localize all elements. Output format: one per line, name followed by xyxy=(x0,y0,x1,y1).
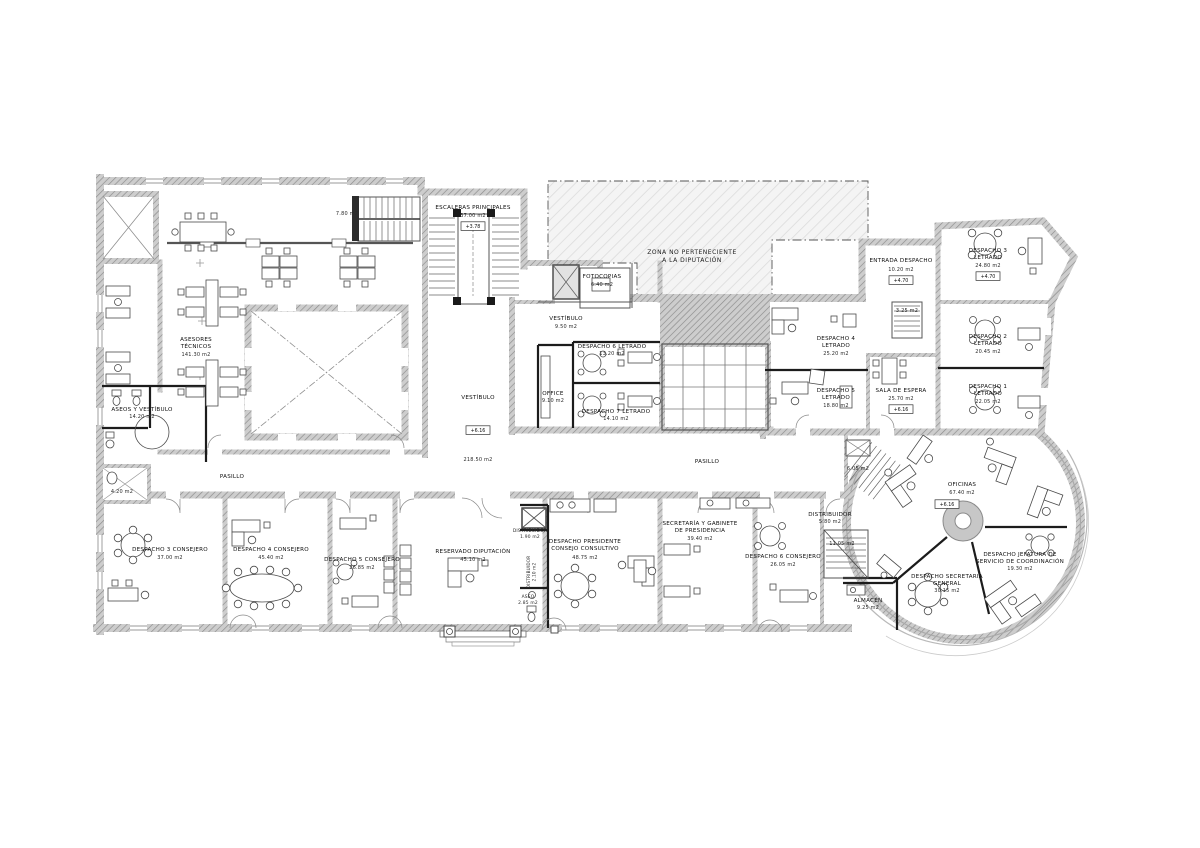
zone-note-line2: A LA DIPUTACIÓN xyxy=(662,257,722,264)
room-area: 1.90 m2 xyxy=(520,534,540,540)
room-name: RESERVADO DIPUTACIÓN xyxy=(435,548,510,555)
room-area: 22.05 m2 xyxy=(975,399,1001,405)
room-name: PASILLO xyxy=(695,459,720,465)
room-name-2: LETRADO xyxy=(974,341,1002,347)
despacho-presidente-furniture xyxy=(550,499,654,608)
label-despacho-jefatura: DESPACHO JEFATURA DE SERVICIO DE COORDIN… xyxy=(976,552,1064,572)
label-asesores-tecnicos: ASESORES TÉCNICOS 141.30 m2 xyxy=(180,337,212,358)
floor-plan-page: ESCALERAS PRINCIPALES 37.00 m2 +3.78 7.8… xyxy=(0,0,1200,848)
room-area: 24.80 m2 xyxy=(975,263,1001,269)
workstation-quad-2 xyxy=(340,248,375,287)
room-area: 18.80 m2 xyxy=(823,403,849,409)
room-area: 6.40 m2 xyxy=(591,282,613,288)
label-despacho-4-consejero: DESPACHO 4 CONSEJERO 45.40 m2 xyxy=(233,547,309,561)
label-despacho-3-letrado: DESPACHO 3 LETRADO 24.80 m2 +4.70 xyxy=(969,248,1008,280)
room-name: DESPACHO 5 CONSEJERO xyxy=(324,557,400,563)
room-name: DESPACHO 7 LETRADO xyxy=(582,409,651,415)
room-area: 67.40 m2 xyxy=(949,490,975,496)
label-entrada-despacho: ENTRADA DESPACHO 10.20 m2 +4.70 xyxy=(869,258,932,284)
room-name: DESPACHO 4 xyxy=(817,336,856,342)
room-area: 26.85 m2 xyxy=(349,565,375,571)
room-area: 9.10 m2 xyxy=(542,398,564,404)
label-despacho-2-letrado: DESPACHO 2 LETRADO 20.45 m2 xyxy=(969,334,1008,355)
room-area: 9.25 m2 xyxy=(857,605,879,611)
room-area: 2.85 m2 xyxy=(518,600,538,606)
room-name: DESPACHO 2 xyxy=(969,334,1008,340)
room-area: 14.20 m2 xyxy=(129,414,155,420)
label-cuarto-420: 4.20 m2 xyxy=(111,489,133,495)
room-name: VESTÍBULO xyxy=(461,394,495,401)
room-name: ESCALERAS PRINCIPALES xyxy=(435,205,510,211)
room-name: FOTOCOPIAS xyxy=(583,274,622,280)
room-name-2: LETRADO xyxy=(822,395,850,401)
left-wing-desks xyxy=(106,286,130,384)
meeting-table-top-left xyxy=(172,213,234,251)
zone-note-line1: ZONA NO PERTENECIENTE xyxy=(647,249,737,256)
room-name: ASEOS Y VESTÍBULO xyxy=(111,406,173,413)
room-name: SALA DE ESPERA xyxy=(876,388,927,394)
room-name: DESPACHO 3 xyxy=(969,248,1008,254)
workstation-cross-1 xyxy=(178,280,246,326)
room-area: 30.15 m2 xyxy=(934,588,960,594)
shaft-top-left xyxy=(101,194,156,261)
room-name: DESPACHO 4 CONSEJERO xyxy=(233,547,309,553)
almacen-fixtures xyxy=(847,585,865,595)
room-name: DESPACHO 3 CONSEJERO xyxy=(132,547,208,553)
room-name: ASEO xyxy=(522,594,535,600)
room-area: 20.45 m2 xyxy=(975,349,1001,355)
room-area: 48.75 m2 xyxy=(572,555,598,561)
oficinas-desks-3 xyxy=(1027,486,1063,523)
room-area: 14.10 m2 xyxy=(603,416,629,422)
room-name: DESPACHO JEFATURA DE xyxy=(983,552,1057,558)
room-name-2: CONSEJO CONSULTIVO xyxy=(551,546,619,552)
label-pasillo-derecho: PASILLO xyxy=(695,459,720,465)
room-area: 39.40 m2 xyxy=(687,536,713,542)
label-despacho-presidente: DESPACHO PRESIDENTE CONSEJO CONSULTIVO 4… xyxy=(549,539,621,561)
floor-plan-drawing: ESCALERAS PRINCIPALES 37.00 m2 +3.78 7.8… xyxy=(0,0,1200,848)
elevation-value: +6.16 xyxy=(894,407,909,413)
elevation-value: +6.16 xyxy=(940,502,955,508)
room-area: 37.00 m2 xyxy=(460,213,486,219)
room-name: DESPACHO PRESIDENTE xyxy=(549,539,621,545)
elevation-value: +6.16 xyxy=(471,428,486,434)
room-name: OFFICE xyxy=(542,391,564,397)
label-vestibulo-pequeno: VESTÍBULO 9.50 m2 xyxy=(549,315,583,330)
oficinas-desks-4 xyxy=(907,435,941,471)
room-name-2: LETRADO xyxy=(822,343,850,349)
stairs-780 xyxy=(352,196,420,241)
room-name-2: LETRADO xyxy=(974,391,1002,397)
elevation-value: +4.70 xyxy=(894,278,909,284)
room-area: 45.10 m2 xyxy=(460,557,486,563)
office-counter xyxy=(541,356,550,418)
room-area: 9.50 m2 xyxy=(555,324,577,330)
label-despacho-4-letrado: DESPACHO 4 LETRADO 25.20 m2 xyxy=(817,336,856,357)
label-aseos-y-vestibulo: ASEOS Y VESTÍBULO 14.20 m2 xyxy=(111,406,173,420)
label-almacen: ALMACÉN 9.25 m2 xyxy=(854,596,883,611)
room-area: 218.50 m2 xyxy=(464,457,493,463)
workstation-cross-2 xyxy=(178,360,246,406)
room-name: DESPACHO 5 xyxy=(817,388,856,394)
label-vestibulo-central: VESTÍBULO +6.16 218.50 m2 xyxy=(461,394,495,463)
room-name: PASILLO xyxy=(220,474,245,480)
room-area: 6.05 m2 xyxy=(847,466,869,472)
label-escalera-605: 6.05 m2 xyxy=(847,466,869,472)
room-area: 5.80 m2 xyxy=(819,519,841,525)
room-name: DISTRIBUIDOR xyxy=(513,528,547,534)
room-name: SECRETARÍA Y GABINETE xyxy=(662,520,737,527)
label-escalera-325: 3.25 m2 xyxy=(896,308,918,314)
room-name: DISTRIBUIDOR xyxy=(526,556,531,589)
room-area: 13.20 m2 xyxy=(599,351,625,357)
room-name: ENTRADA DESPACHO xyxy=(869,258,932,264)
room-area: 7.80 m2 xyxy=(336,211,358,217)
room-name: DESPACHO 1 xyxy=(969,384,1008,390)
label-secretaria-gabinete: SECRETARÍA Y GABINETE DE PRESIDENCIA 39.… xyxy=(662,520,737,542)
oficinas-desks-2 xyxy=(975,437,1020,485)
room-area: 141.30 m2 xyxy=(182,352,211,358)
room-area: 4.20 m2 xyxy=(111,489,133,495)
room-area: 3.25 m2 xyxy=(896,308,918,314)
elevation-value: +4.70 xyxy=(981,274,996,280)
shaft-420 xyxy=(101,466,149,502)
room-name-2: GENERAL xyxy=(933,581,962,587)
room-name: DESPACHO SECRETARIA xyxy=(911,574,983,580)
room-name: OFICINAS xyxy=(948,482,977,488)
survey-crosses xyxy=(196,259,206,380)
room-area: 2.10 m2 xyxy=(532,562,537,581)
despacho-3-consejero-furniture xyxy=(108,526,152,601)
label-escalera-780: 7.80 m2 xyxy=(336,211,358,217)
room-area: 25.20 m2 xyxy=(823,351,849,357)
room-area: 25.70 m2 xyxy=(888,396,914,402)
room-area: 11.05 m2 xyxy=(829,541,855,547)
despacho-6-consejero-furniture xyxy=(736,498,817,602)
label-distribuidor-aseo: DISTRIBUIDOR 2.10 m2 xyxy=(526,556,537,589)
label-distribuidor-entrada: DISTRIBUIDOR 1.90 m2 xyxy=(513,528,547,540)
label-office: OFFICE 9.10 m2 xyxy=(542,391,564,404)
label-reservado-diputacion: RESERVADO DIPUTACIÓN 45.10 m2 xyxy=(435,548,510,563)
room-name: DISTRIBUIDOR xyxy=(808,512,852,518)
label-pasillo-izquierdo: PASILLO xyxy=(220,474,245,480)
despacho-4-consejero-furniture xyxy=(222,520,302,610)
room-name: ASESORES xyxy=(180,337,212,343)
sala-espera-furniture xyxy=(873,358,906,384)
room-area: 26.05 m2 xyxy=(770,562,796,568)
room-area: 10.20 m2 xyxy=(888,267,914,273)
label-sala-de-espera: SALA DE ESPERA 25.70 m2 +6.16 xyxy=(876,388,927,413)
label-escalera-1105: 11.05 m2 xyxy=(829,541,855,547)
room-name: ALMACÉN xyxy=(854,596,883,604)
elevation-value: +3.78 xyxy=(466,224,481,230)
room-name-2: LETRADO xyxy=(974,255,1002,261)
room-name-2: TÉCNICOS xyxy=(180,342,212,350)
room-name: DESPACHO 6 CONSEJERO xyxy=(745,554,821,560)
room-name: DESPACHO 6 LETRADO xyxy=(578,344,647,350)
label-despacho-7-letrado: DESPACHO 7 LETRADO 14.10 m2 xyxy=(582,409,651,422)
courtyard-central xyxy=(248,308,405,437)
room-area: 37.00 m2 xyxy=(157,555,183,561)
workstation-quad-1 xyxy=(262,248,297,287)
room-name-2: SERVICIO DE COORDINACIÓN xyxy=(976,558,1064,565)
room-name: VESTÍBULO xyxy=(549,315,583,322)
oficinas-desks-1 xyxy=(880,457,928,507)
room-area: 19.30 m2 xyxy=(1007,566,1033,572)
label-despacho-3-consejero: DESPACHO 3 CONSEJERO 37.00 m2 xyxy=(132,547,208,561)
skylight-grid xyxy=(662,344,768,430)
room-area: 45.40 m2 xyxy=(258,555,284,561)
label-despacho-1-letrado: DESPACHO 1 LETRADO 22.05 m2 xyxy=(969,384,1008,405)
room-name-2: DE PRESIDENCIA xyxy=(675,528,726,534)
